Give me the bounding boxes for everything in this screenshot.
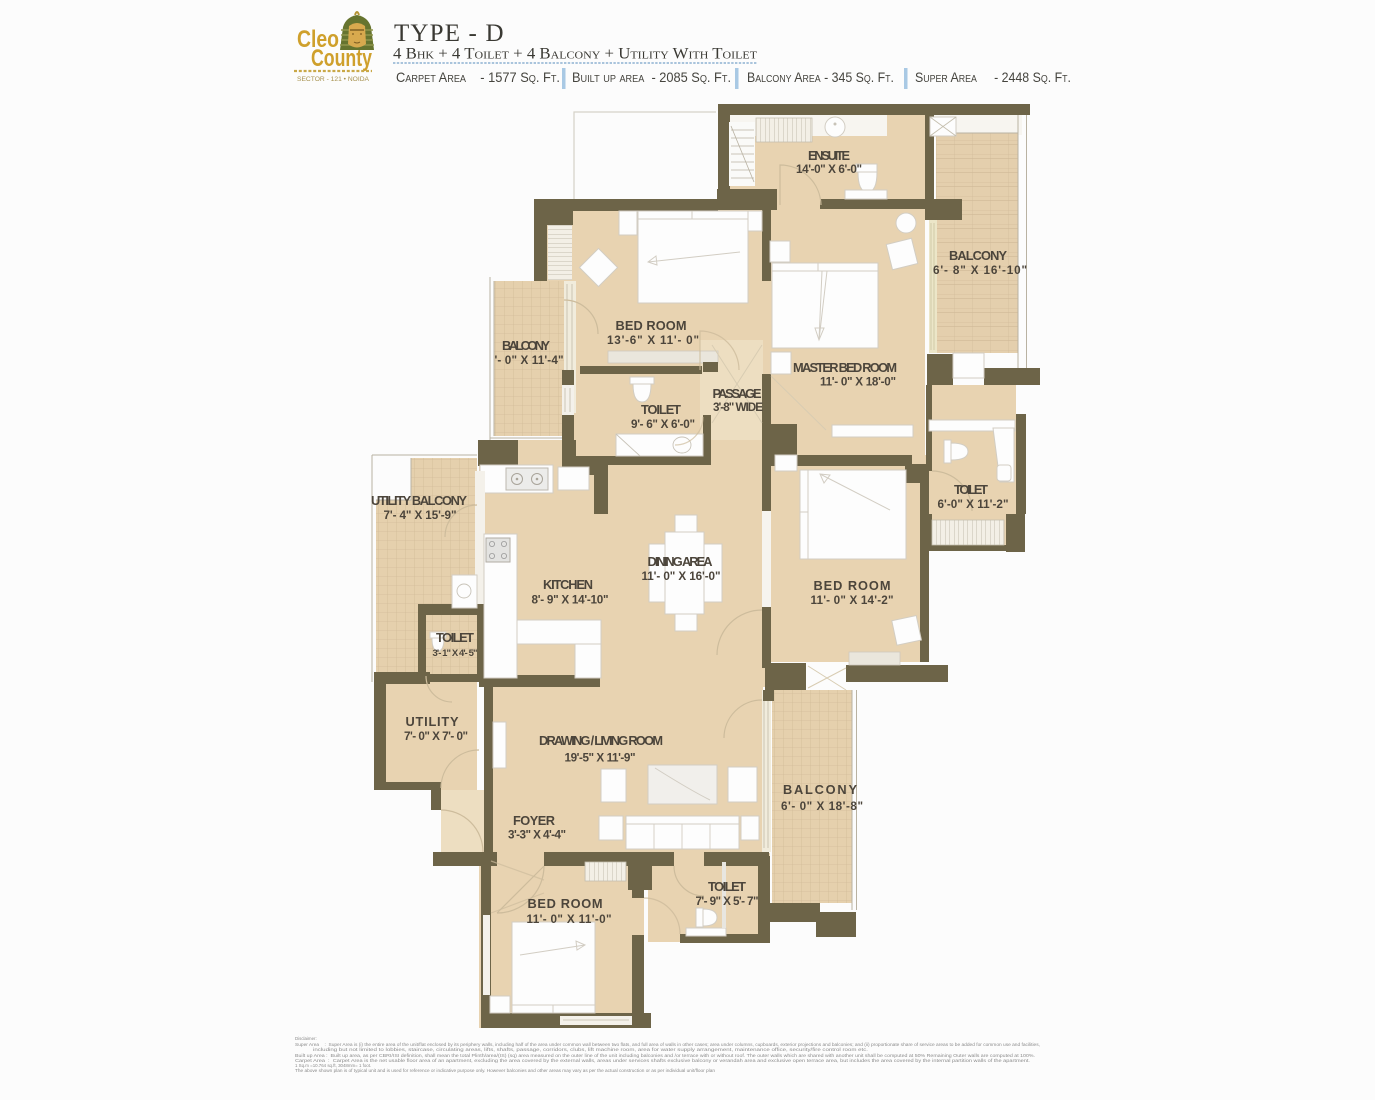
svg-text:The above shown plan is of typ: The above shown plan is of typical unit … — [295, 1068, 716, 1073]
svg-text:8'- 9" X 14'-10": 8'- 9" X 14'-10" — [532, 594, 609, 607]
svg-text:TYPE - D: TYPE - D — [394, 20, 506, 47]
svg-text:3'-3" X 4'-4": 3'-3" X 4'-4" — [508, 829, 566, 842]
svg-text:9'- 6" X 6'-0": 9'- 6" X 6'-0" — [631, 418, 695, 431]
svg-text:3'-8" WIDE: 3'-8" WIDE — [713, 401, 763, 414]
svg-text:6'-0" X 11'-2": 6'-0" X 11'-2" — [938, 498, 1009, 511]
svg-text:14'-0" X 6'-0": 14'-0" X 6'-0" — [796, 163, 862, 176]
svg-text:19'-5" X 11'-9": 19'-5" X 11'-9" — [565, 752, 636, 765]
svg-text:KITCHEN: KITCHEN — [543, 577, 593, 592]
svg-text:Disclaimer:: Disclaimer: — [295, 1036, 317, 1041]
svg-text:13'-6" X 11'- 0": 13'-6" X 11'- 0" — [607, 334, 699, 347]
svg-text:including but not limited to l: including but not limited to lobbies, st… — [313, 1047, 868, 1052]
svg-text:UTILITY: UTILITY — [406, 714, 459, 729]
svg-text:11'- 0" X 18'-0": 11'- 0" X 18'-0" — [820, 376, 896, 389]
svg-text:11'- 0" X 14'-2": 11'- 0" X 14'-2" — [811, 594, 894, 607]
svg-text:BALCONY: BALCONY — [949, 248, 1007, 263]
svg-text:BED ROOM: BED ROOM — [616, 318, 687, 333]
svg-text:Super Area - 2448 Sq. Ft.: Super Area - 2448 Sq. Ft. — [915, 69, 1071, 85]
svg-text:11'- 0" X 11'-0": 11'- 0" X 11'-0" — [527, 913, 612, 926]
svg-text:DRAWING / LIVING ROOM: DRAWING / LIVING ROOM — [539, 733, 663, 748]
svg-text:7'- 9" X 5'- 7": 7'- 9" X 5'- 7" — [696, 895, 759, 908]
svg-text:6'- 8" X 16'-10": 6'- 8" X 16'-10" — [933, 264, 1027, 277]
svg-text:UTILITY BALCONY: UTILITY BALCONY — [371, 493, 467, 508]
svg-text:Carpet Area - 1577 Sq. Ft.: Carpet Area - 1577 Sq. Ft. — [396, 69, 560, 85]
svg-text:3'- 1" X 4'- 5": 3'- 1" X 4'- 5" — [433, 648, 478, 659]
svg-text:PASSAGE: PASSAGE — [713, 386, 762, 401]
svg-text:ENSUITE: ENSUITE — [808, 148, 850, 163]
svg-text:FOYER: FOYER — [513, 813, 555, 828]
svg-text:BED ROOM: BED ROOM — [814, 578, 891, 593]
svg-text:SECTOR - 121 • NOIDA: SECTOR - 121 • NOIDA — [297, 76, 370, 83]
svg-text:Built up area - 2085 Sq. Ft.: Built up area - 2085 Sq. Ft. — [572, 69, 731, 85]
svg-text:Balcony Area - 345 Sq. Ft.: Balcony Area - 345 Sq. Ft. — [747, 69, 894, 85]
svg-text:11'- 0" X 16'-0": 11'- 0" X 16'-0" — [642, 570, 721, 583]
svg-text:TOILET: TOILET — [954, 482, 988, 497]
svg-text:BED ROOM: BED ROOM — [528, 896, 603, 911]
svg-text:TOILET: TOILET — [641, 402, 681, 417]
svg-text:TOILET: TOILET — [708, 879, 746, 894]
svg-text:7'- 0" X 7'- 0": 7'- 0" X 7'- 0" — [404, 730, 468, 743]
svg-text:6'- 0" X 18'-8": 6'- 0" X 18'-8" — [781, 800, 863, 813]
svg-text:TOILET: TOILET — [436, 630, 474, 645]
svg-text:DINING AREA: DINING AREA — [648, 554, 713, 569]
svg-text:BALCONY: BALCONY — [783, 782, 857, 797]
svg-text:BALCONY: BALCONY — [502, 338, 550, 353]
svg-text:MASTER BED ROOM: MASTER BED ROOM — [793, 360, 897, 375]
svg-text:'- 0" X 11'-4": '- 0" X 11'-4" — [495, 354, 564, 367]
svg-text:4 Bhk + 4 Toilet + 4 Balcony +: 4 Bhk + 4 Toilet + 4 Balcony + Utility W… — [393, 46, 757, 63]
svg-text:7'- 4" X 15'-9": 7'- 4" X 15'-9" — [384, 509, 457, 522]
svg-text:Carpet Area : Carpet Area is: Carpet Area : Carpet Area is the net usa… — [295, 1058, 1030, 1063]
